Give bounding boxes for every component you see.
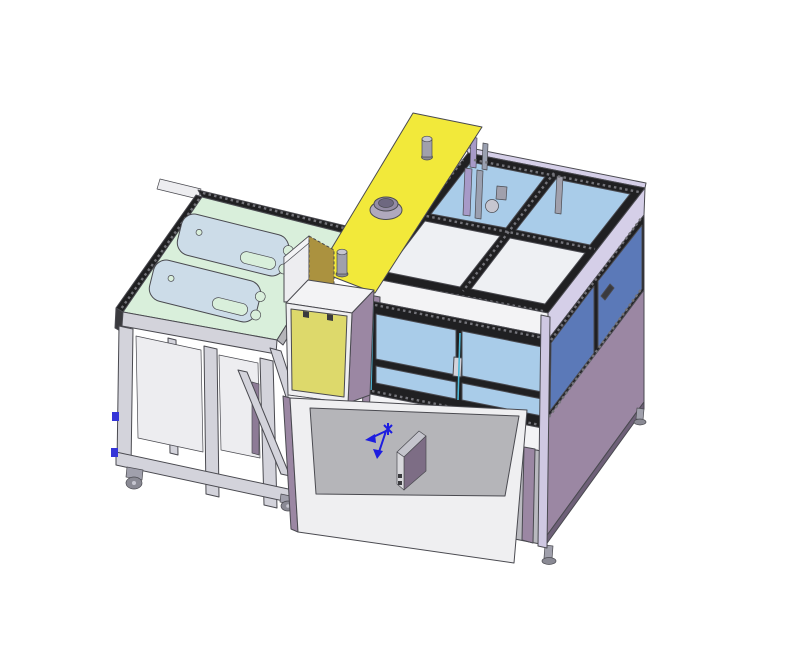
box-tick-2 <box>398 481 402 485</box>
mechanism-roller <box>486 200 499 213</box>
sensor-tick-2 <box>111 448 118 457</box>
cabinet-yellow-door[interactable] <box>291 309 347 397</box>
bay-right-strip <box>522 447 535 543</box>
mechanism-block <box>496 186 507 200</box>
mechanism-post-2 <box>482 143 488 170</box>
hinge-2 <box>327 314 333 321</box>
mechanism-rail-purple <box>463 168 472 216</box>
window-handle[interactable] <box>453 357 462 377</box>
sensor-tick-1 <box>112 412 119 421</box>
guide-pin-top <box>422 136 433 160</box>
table-leg-left <box>117 326 133 468</box>
hinge-1 <box>303 311 309 318</box>
box-tick-1 <box>398 474 402 478</box>
cad-viewport <box>0 0 800 653</box>
table-panel-1 <box>136 336 203 452</box>
guide-pin-bottom <box>336 249 348 277</box>
